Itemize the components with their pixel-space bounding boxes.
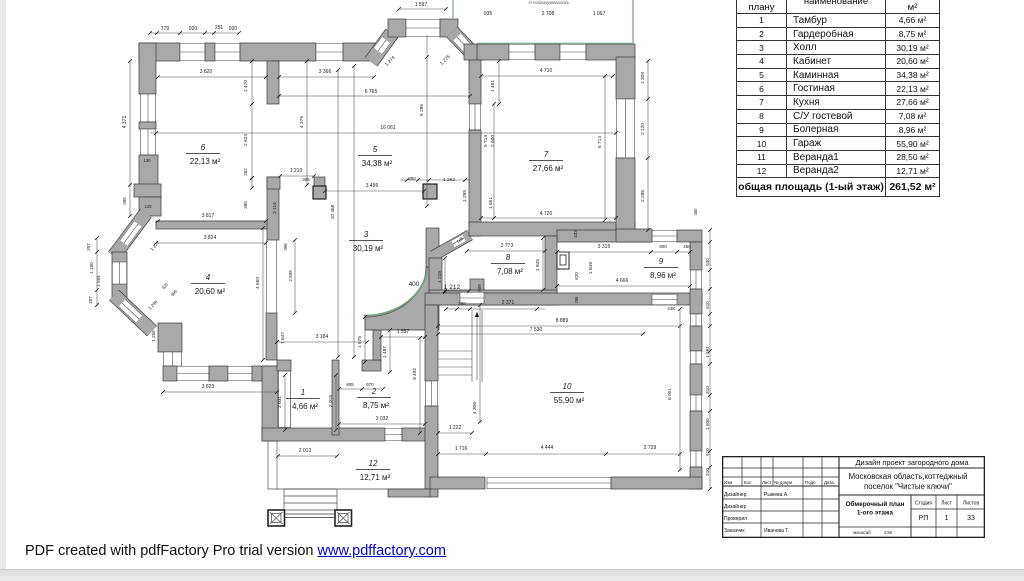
svg-text:РП: РП <box>919 515 929 522</box>
svg-text:2 599: 2 599 <box>288 270 293 282</box>
svg-text:2 114: 2 114 <box>272 202 278 214</box>
svg-text:34,38 м²: 34,38 м² <box>362 159 393 168</box>
svg-text:22,13 м²: 22,13 м² <box>190 157 221 166</box>
svg-text:12: 12 <box>369 459 378 468</box>
svg-text:1 557: 1 557 <box>397 329 410 335</box>
svg-text:509: 509 <box>477 284 482 292</box>
svg-text:2 015: 2 015 <box>328 395 334 407</box>
svg-text:2 285: 2 285 <box>640 190 646 202</box>
svg-text:779: 779 <box>161 26 170 32</box>
svg-text:4,66 м²: 4,66 м² <box>292 402 318 411</box>
svg-text:12,71 м²: 12,71 м² <box>360 473 391 482</box>
svg-text:1 575: 1 575 <box>357 336 363 348</box>
svg-text:Рыжева А.: Рыжева А. <box>764 492 789 498</box>
svg-text:Дата: Дата <box>824 480 834 485</box>
svg-text:395: 395 <box>302 177 310 182</box>
svg-text:123: 123 <box>145 204 153 209</box>
svg-text:1 067: 1 067 <box>593 11 606 17</box>
svg-text:9: 9 <box>659 257 664 266</box>
svg-text:400: 400 <box>409 281 420 288</box>
svg-text:2 120: 2 120 <box>640 123 646 135</box>
svg-text:4 376: 4 376 <box>299 116 305 128</box>
svg-text:390: 390 <box>408 176 416 181</box>
svg-text:4 710: 4 710 <box>540 68 553 74</box>
svg-text:1 210: 1 210 <box>290 168 303 174</box>
svg-text:433: 433 <box>573 230 578 238</box>
svg-text:55,90 м²: 55,90 м² <box>554 396 585 405</box>
svg-text:5 714: 5 714 <box>483 135 489 147</box>
svg-text:3 496: 3 496 <box>366 183 379 189</box>
svg-text:1 845: 1 845 <box>535 259 541 271</box>
svg-text:1:50: 1:50 <box>884 530 893 535</box>
svg-text:1 461: 1 461 <box>490 80 496 92</box>
svg-text:2 371: 2 371 <box>502 300 515 306</box>
svg-text:6 051: 6 051 <box>667 388 673 400</box>
svg-text:поселок "Чистые ключи": поселок "Чистые ключи" <box>864 482 952 491</box>
svg-text:Московская область,коттеджный: Московская область,коттеджный <box>849 472 968 481</box>
svg-text:3 184: 3 184 <box>316 334 329 340</box>
svg-text:805: 805 <box>346 382 354 387</box>
svg-text:3 315: 3 315 <box>598 244 611 250</box>
svg-text:Проверил: Проверил <box>724 516 747 522</box>
svg-text:3 492: 3 492 <box>412 368 418 380</box>
svg-text:385: 385 <box>243 201 248 209</box>
svg-text:4 306: 4 306 <box>472 402 478 414</box>
svg-text:399: 399 <box>283 243 288 251</box>
svg-text:1 256: 1 256 <box>151 330 156 342</box>
svg-text:1: 1 <box>301 388 305 397</box>
svg-text:3 820: 3 820 <box>200 69 213 75</box>
svg-text:448: 448 <box>667 306 675 311</box>
svg-text:Листов: Листов <box>963 501 980 507</box>
svg-text:510: 510 <box>705 468 710 476</box>
svg-text:№ докум: № докум <box>774 480 792 485</box>
svg-text:5 286: 5 286 <box>419 104 425 116</box>
svg-text:Стадия: Стадия <box>915 501 932 507</box>
svg-text:1 262: 1 262 <box>443 177 455 183</box>
svg-text:5: 5 <box>373 145 378 154</box>
svg-text:620: 620 <box>574 272 579 280</box>
svg-text:385: 385 <box>122 197 127 205</box>
svg-text:2 708: 2 708 <box>542 11 555 17</box>
svg-text:Кол: Кол <box>744 480 752 485</box>
svg-text:Лист: Лист <box>762 480 772 485</box>
svg-text:8: 8 <box>506 253 511 262</box>
svg-text:Изм: Изм <box>724 480 732 485</box>
svg-text:1 222: 1 222 <box>449 425 462 431</box>
svg-text:4 371: 4 371 <box>122 116 128 129</box>
svg-text:2 600: 2 600 <box>490 135 496 147</box>
svg-text:1 600: 1 600 <box>705 418 710 430</box>
svg-text:7: 7 <box>544 150 549 159</box>
svg-text:1-ого этажа: 1-ого этажа <box>857 510 894 517</box>
svg-text:2 773: 2 773 <box>501 243 514 249</box>
svg-text:620: 620 <box>161 281 170 290</box>
svg-text:8,96 м²: 8,96 м² <box>650 271 676 280</box>
svg-text:3 032: 3 032 <box>376 416 389 422</box>
svg-text:Н подразумевалось: Н подразумевалось <box>528 0 570 5</box>
svg-text:Дизайнер: Дизайнер <box>724 503 747 510</box>
svg-text:1 647: 1 647 <box>280 332 286 344</box>
svg-text:8,75 м²: 8,75 м² <box>363 401 389 410</box>
svg-text:596: 596 <box>170 288 179 297</box>
svg-text:450: 450 <box>693 208 698 216</box>
svg-text:450: 450 <box>683 244 691 249</box>
svg-text:2 031: 2 031 <box>277 396 283 408</box>
svg-text:130: 130 <box>144 158 152 163</box>
svg-text:1 296: 1 296 <box>147 299 159 311</box>
svg-text:1 581: 1 581 <box>705 346 710 358</box>
svg-text:2 013: 2 013 <box>299 448 312 454</box>
svg-text:6 765: 6 765 <box>365 89 378 95</box>
svg-text:1 470: 1 470 <box>243 80 249 92</box>
svg-text:610: 610 <box>705 448 710 456</box>
svg-text:8 889: 8 889 <box>556 318 569 324</box>
svg-text:1 277: 1 277 <box>149 240 161 252</box>
svg-text:1 212: 1 212 <box>444 284 461 291</box>
svg-text:1 180: 1 180 <box>89 262 94 274</box>
svg-text:1 309: 1 309 <box>640 72 646 84</box>
svg-text:3 366: 3 366 <box>319 69 332 75</box>
svg-text:920: 920 <box>229 26 238 32</box>
svg-text:3 823: 3 823 <box>202 384 215 390</box>
svg-text:900: 900 <box>659 244 667 249</box>
svg-text:1 651: 1 651 <box>488 197 494 209</box>
svg-text:1 597: 1 597 <box>415 2 428 8</box>
svg-text:4 444: 4 444 <box>541 445 554 451</box>
svg-text:610: 610 <box>705 301 710 309</box>
svg-text:262: 262 <box>243 168 248 176</box>
svg-text:935: 935 <box>484 11 493 17</box>
svg-text:Иванова Т.: Иванова Т. <box>764 528 789 534</box>
svg-text:Заказчик: Заказчик <box>724 528 745 534</box>
svg-text:10 468: 10 468 <box>330 204 336 219</box>
svg-text:30,19 м²: 30,19 м² <box>353 244 384 253</box>
svg-text:390: 390 <box>458 301 466 306</box>
svg-text:1 219: 1 219 <box>437 271 443 283</box>
svg-text:207: 207 <box>88 296 93 304</box>
svg-text:Лист: Лист <box>941 501 953 507</box>
svg-text:4: 4 <box>206 273 211 282</box>
svg-text:масштаб: масштаб <box>853 530 871 535</box>
svg-text:1 275: 1 275 <box>439 54 452 67</box>
svg-text:2: 2 <box>371 387 377 396</box>
svg-text:496: 496 <box>574 296 579 304</box>
svg-text:16 061: 16 061 <box>380 125 396 131</box>
svg-text:20,60 м²: 20,60 м² <box>195 287 226 296</box>
svg-text:4 650: 4 650 <box>255 277 261 289</box>
svg-text:Дизайнер: Дизайнер <box>724 491 747 498</box>
svg-text:920: 920 <box>189 26 198 32</box>
svg-text:1 594: 1 594 <box>96 275 101 287</box>
svg-text:530: 530 <box>705 258 710 266</box>
svg-text:7,08 м²: 7,08 м² <box>497 267 523 276</box>
svg-text:3: 3 <box>364 230 369 239</box>
svg-text:Дизайн проект загородного дома: Дизайн проект загородного дома <box>856 458 970 467</box>
svg-text:27,66 м²: 27,66 м² <box>533 164 564 173</box>
svg-text:207: 207 <box>86 243 91 251</box>
svg-text:6: 6 <box>201 143 206 152</box>
svg-text:1 274: 1 274 <box>384 55 397 68</box>
svg-text:2 624: 2 624 <box>243 134 249 146</box>
svg-text:7 530: 7 530 <box>530 327 543 333</box>
svg-text:1 849: 1 849 <box>588 262 594 274</box>
svg-text:33: 33 <box>967 515 975 522</box>
svg-text:10: 10 <box>563 382 572 391</box>
svg-text:610: 610 <box>705 386 710 394</box>
svg-text:670: 670 <box>366 382 374 387</box>
svg-text:Подп: Подп <box>805 480 816 485</box>
svg-text:3 817: 3 817 <box>202 213 215 219</box>
svg-text:1 487: 1 487 <box>382 346 388 358</box>
svg-text:2 729: 2 729 <box>644 445 657 451</box>
svg-text:3 824: 3 824 <box>204 235 217 241</box>
svg-text:Обмерочный план: Обмерочный план <box>846 500 905 508</box>
svg-text:1: 1 <box>945 515 949 522</box>
svg-text:4 720: 4 720 <box>540 211 553 217</box>
svg-text:1 295: 1 295 <box>462 190 468 202</box>
svg-text:4 666: 4 666 <box>616 278 629 284</box>
svg-text:5 714: 5 714 <box>597 136 603 148</box>
svg-text:1 716: 1 716 <box>455 446 468 452</box>
svg-text:251: 251 <box>215 25 224 31</box>
